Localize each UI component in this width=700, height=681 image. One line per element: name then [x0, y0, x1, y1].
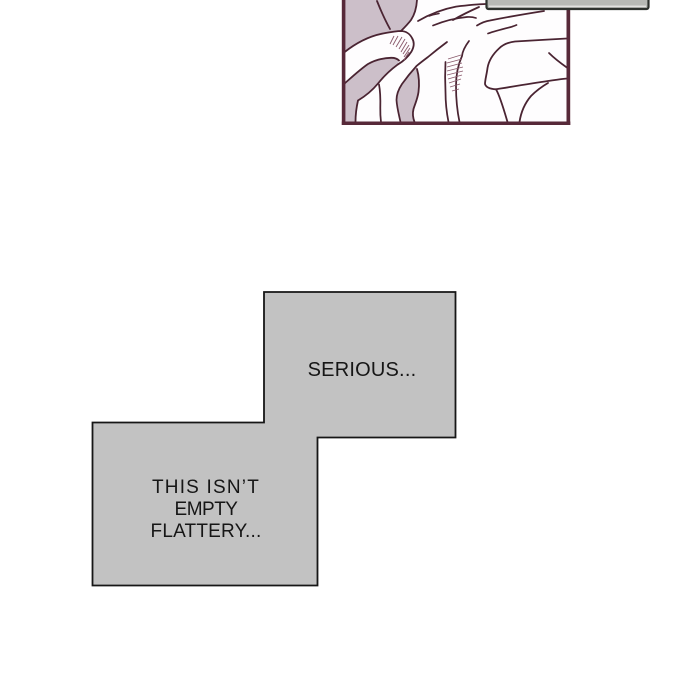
svg-text:THIS ISN’T: THIS ISN’T — [152, 477, 260, 498]
svg-text:FLATTERY...: FLATTERY... — [151, 521, 262, 542]
svg-text:EMPTY: EMPTY — [175, 499, 239, 520]
svg-text:SERIOUS...: SERIOUS... — [308, 359, 417, 381]
